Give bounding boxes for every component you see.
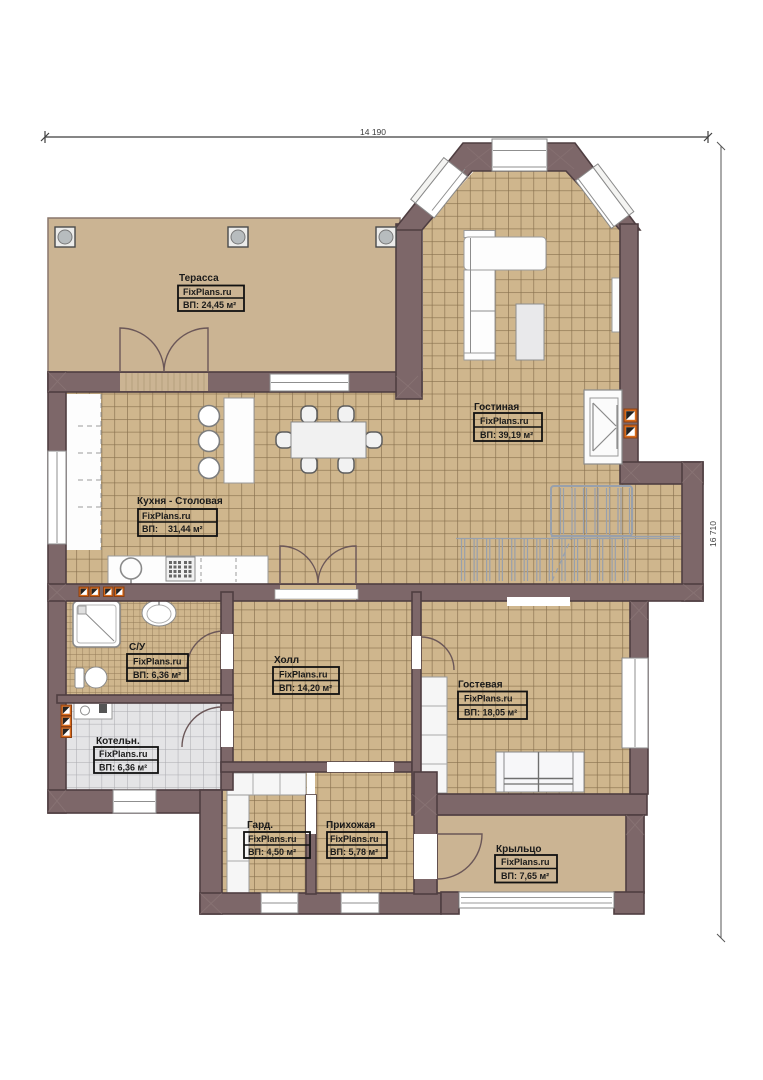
svg-text:Гостевая: Гостевая [458, 680, 503, 691]
svg-text:16 710: 16 710 [708, 521, 718, 547]
svg-text:ВП: 7,65 м²: ВП: 7,65 м² [501, 871, 549, 881]
svg-text:ВП: 39,19 м²: ВП: 39,19 м² [480, 430, 533, 440]
svg-text:ВП: 24,45 м²: ВП: 24,45 м² [183, 300, 236, 310]
svg-text:14 190: 14 190 [360, 127, 386, 137]
svg-text:ВП:: ВП: [142, 524, 158, 534]
svg-text:FixPlans.ru: FixPlans.ru [501, 857, 550, 867]
svg-text:ВП: 14,20 м²: ВП: 14,20 м² [279, 683, 332, 693]
svg-text:FixPlans.ru: FixPlans.ru [279, 670, 328, 680]
svg-text:ВП: 6,36 м²: ВП: 6,36 м² [99, 763, 147, 773]
svg-text:Гард.: Гард. [247, 820, 273, 831]
svg-text:С/У: С/У [129, 642, 146, 653]
svg-text:FixPlans.ru: FixPlans.ru [330, 834, 379, 844]
svg-text:Крыльцо: Крыльцо [496, 844, 542, 855]
svg-text:ВП: 5,78 м²: ВП: 5,78 м² [330, 847, 378, 857]
svg-text:Прихожая: Прихожая [326, 820, 376, 831]
svg-text:31,44 м²: 31,44 м² [168, 524, 203, 534]
svg-text:Холл: Холл [274, 655, 299, 666]
svg-text:FixPlans.ru: FixPlans.ru [142, 511, 191, 521]
svg-text:ВП: 18,05 м²: ВП: 18,05 м² [464, 708, 517, 718]
svg-text:FixPlans.ru: FixPlans.ru [183, 287, 232, 297]
svg-text:ВП: 4,50 м²: ВП: 4,50 м² [248, 847, 296, 857]
svg-text:Гостиная: Гостиная [474, 402, 519, 413]
svg-text:FixPlans.ru: FixPlans.ru [99, 749, 148, 759]
svg-text:Терасса: Терасса [179, 273, 219, 284]
svg-text:FixPlans.ru: FixPlans.ru [464, 694, 513, 704]
svg-text:FixPlans.ru: FixPlans.ru [480, 416, 529, 426]
svg-text:FixPlans.ru: FixPlans.ru [248, 834, 297, 844]
svg-text:Котельн.: Котельн. [96, 736, 140, 747]
svg-text:Кухня - Столовая: Кухня - Столовая [137, 496, 223, 507]
svg-text:ВП: 6,36 м²: ВП: 6,36 м² [133, 670, 181, 680]
svg-text:FixPlans.ru: FixPlans.ru [133, 657, 182, 667]
